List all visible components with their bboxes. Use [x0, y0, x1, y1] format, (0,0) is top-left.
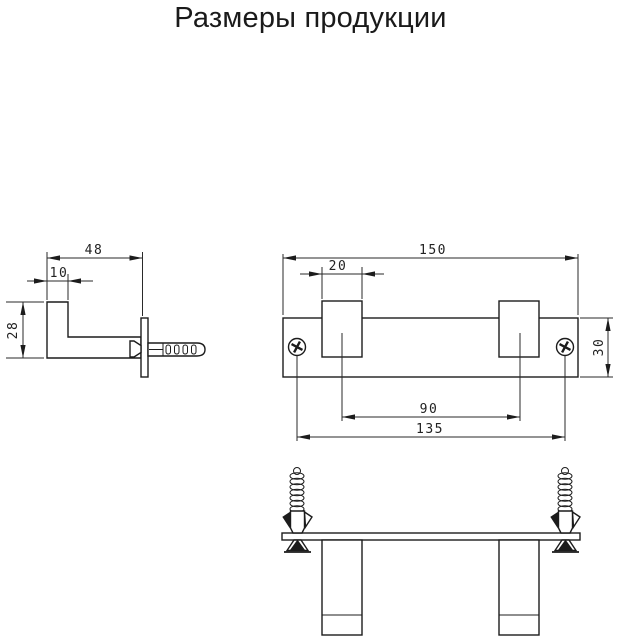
- hook-side-profile: [47, 302, 141, 358]
- side-view: 48 10 28: [6, 243, 205, 377]
- dim-width-label: 150: [419, 243, 447, 258]
- dim-hook-width: 20: [300, 259, 384, 299]
- dim-plate-height-label: 30: [592, 338, 607, 357]
- dim-height: 28: [6, 302, 44, 358]
- hook-right: [499, 301, 539, 357]
- dim-mount-spacing-label: 135: [416, 422, 444, 437]
- wall-anchor-side: [148, 343, 205, 356]
- dim-depth-label: 48: [85, 243, 104, 258]
- dim-tip-label: 10: [50, 266, 69, 281]
- product-dimensions-page: Размеры продукции: [0, 0, 621, 640]
- arm-right: [499, 540, 539, 635]
- dim-plate-height: 30: [580, 318, 613, 377]
- mounting-plate-edge: [141, 318, 148, 377]
- screw-left: [289, 339, 306, 356]
- dim-height-label: 28: [6, 321, 21, 340]
- bottom-view: [282, 468, 580, 636]
- dim-tip: 10: [27, 266, 93, 300]
- dim-hook-width-label: 20: [329, 259, 348, 274]
- dim-hook-spacing-label: 90: [420, 402, 439, 417]
- arm-left: [322, 540, 362, 635]
- front-view: 150 20 30: [283, 243, 613, 441]
- plate-top-view: [282, 533, 580, 540]
- screw-right: [557, 339, 574, 356]
- technical-drawing: 48 10 28: [0, 0, 621, 640]
